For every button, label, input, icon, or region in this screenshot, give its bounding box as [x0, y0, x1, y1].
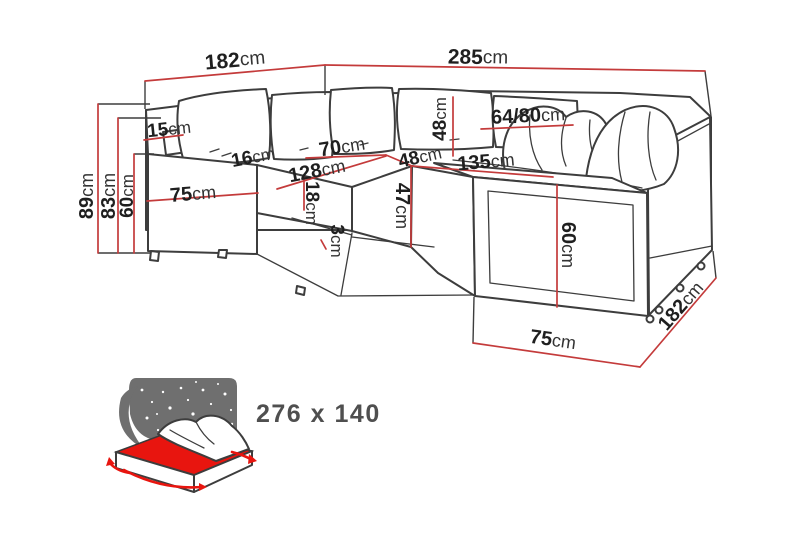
dim-label-width-right-top: 285cm: [448, 45, 509, 69]
dim-label-return-width-bottom: 75cm: [529, 326, 578, 354]
dim-line-corner-gap: [321, 240, 326, 249]
dim-label-back-cushion-height: 48cm: [430, 97, 451, 141]
dim-line-width-right-top: [325, 65, 705, 71]
dim-label-corner-gap: 3cm: [327, 224, 348, 257]
right-foot-3: [698, 263, 705, 270]
dim-label-height-armrest-right: 60cm: [557, 222, 579, 268]
dim-label-seat-height-front: 47cm: [391, 183, 413, 229]
sleeping-size-label: 276 x 140: [256, 400, 381, 428]
left-leg-1: [150, 251, 159, 261]
return-left-side: [411, 166, 475, 296]
diagram-canvas: 182cm285cm89cm83cm60cm15cm16cm75cm128cm7…: [0, 0, 800, 533]
dim-label-width-left-top: 182cm: [204, 46, 266, 74]
dim-label-height-total: 89cm: [76, 173, 98, 219]
right-foot-4: [647, 316, 654, 323]
sofa-dimension-diagram: 182cm285cm89cm83cm60cm15cm16cm75cm128cm7…: [0, 0, 800, 533]
dim-label-height-armrest-left: 60cm: [117, 174, 138, 218]
corner-leg: [296, 286, 305, 295]
dim-label-seat-cushion-thickness: 18cm: [302, 181, 323, 225]
sofa-bed-icon: 276 x 140: [106, 378, 381, 492]
left-leg-2: [218, 250, 227, 258]
unfold-arrow-left-head: [106, 457, 115, 466]
